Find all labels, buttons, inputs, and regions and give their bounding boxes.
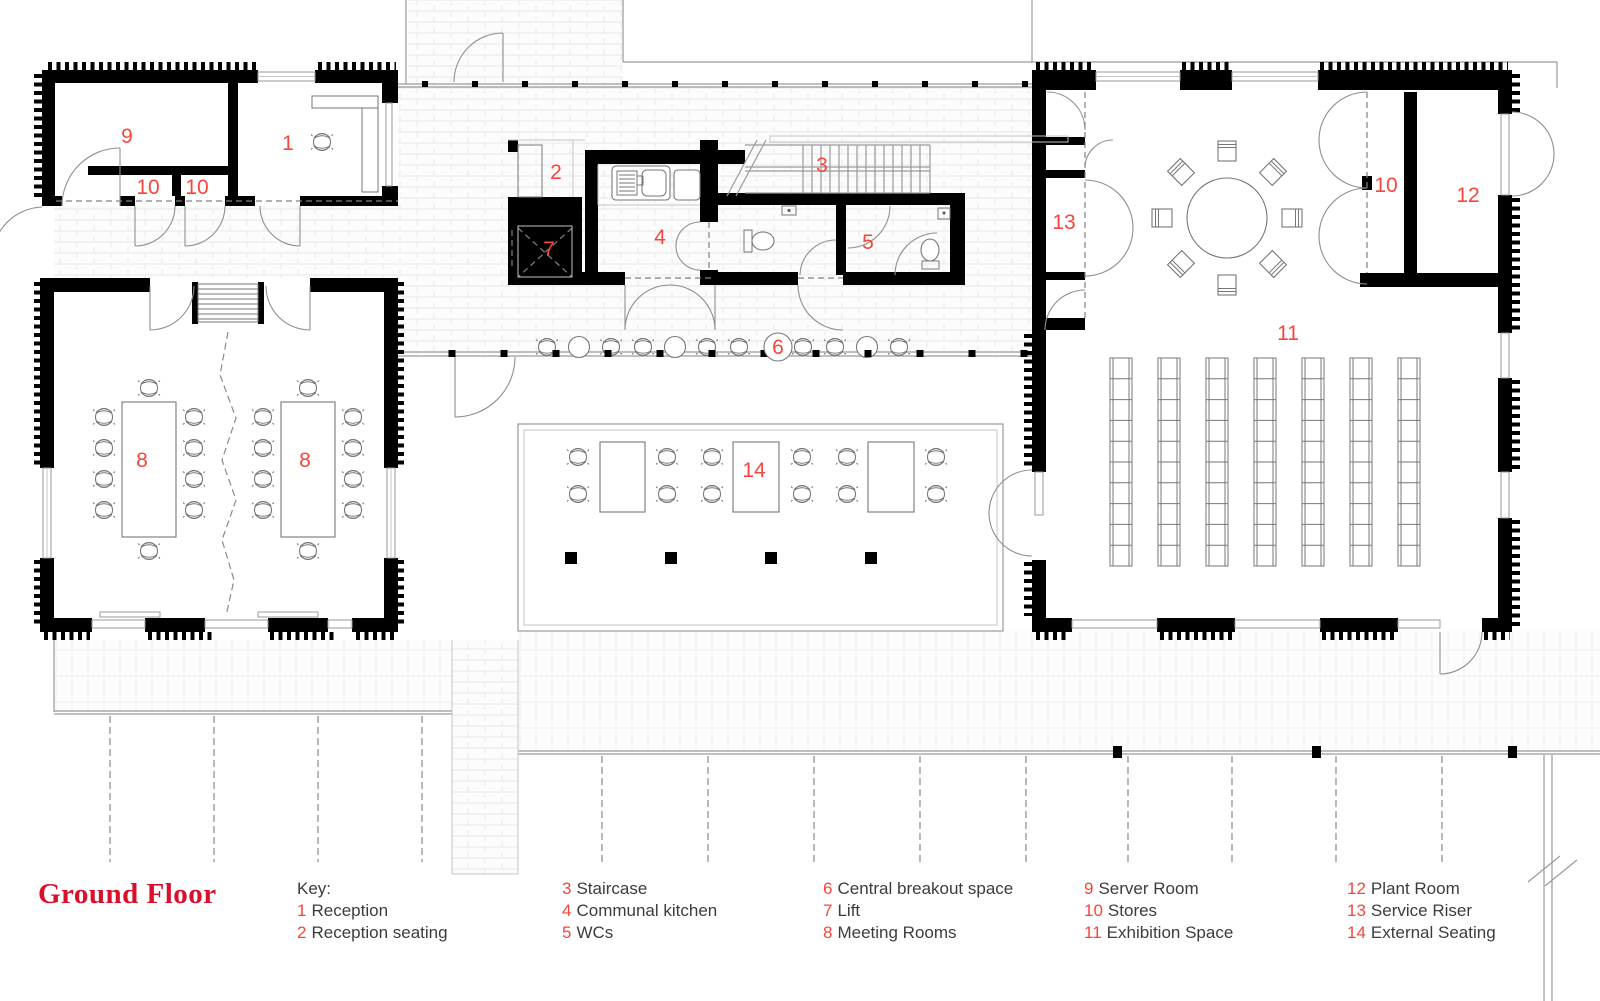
legend-item-label: Plant Room — [1371, 879, 1460, 898]
legend-item: 5WCs — [562, 922, 717, 944]
exhibition-racks — [1110, 358, 1420, 566]
round-table-group — [1152, 141, 1302, 295]
legend-item-number: 10 — [1084, 901, 1103, 920]
room-number-label: 4 — [654, 226, 666, 249]
legend-item-number: 4 — [562, 901, 571, 920]
legend-item: 4Communal kitchen — [562, 900, 717, 922]
legend-item: 1Reception — [297, 900, 448, 922]
legend-item-label: WCs — [576, 923, 613, 942]
room-number-label: 10 — [185, 176, 208, 199]
legend-item-number: 12 — [1347, 879, 1366, 898]
legend-column: 12Plant Room13Service Riser14External Se… — [1347, 878, 1496, 944]
page-title: Ground Floor — [38, 878, 217, 911]
legend-item-number: 6 — [823, 879, 832, 898]
legend-item: 9Server Room — [1084, 878, 1233, 900]
room-number-label: 5 — [862, 231, 874, 254]
legend-item: 7Lift — [823, 900, 1013, 922]
legend-item: 11Exhibition Space — [1084, 922, 1233, 944]
room-number-label: 10 — [136, 176, 159, 199]
legend-item: 8Meeting Rooms — [823, 922, 1013, 944]
meeting-table — [122, 402, 176, 537]
round-table — [1187, 178, 1267, 258]
toilet — [921, 239, 939, 261]
meeting-room-furniture — [93, 380, 364, 560]
apron-left — [54, 640, 452, 712]
room-number-label: 7 — [543, 238, 555, 261]
legend-column: 6Central breakout space7Lift8Meeting Roo… — [823, 878, 1013, 944]
legend-item-label: Central breakout space — [837, 879, 1013, 898]
kitchen-appliance — [674, 170, 700, 200]
room-number-label: 10 — [1374, 174, 1397, 197]
legend-item: 13Service Riser — [1347, 900, 1496, 922]
legend-item-number: 14 — [1347, 923, 1366, 942]
entry-path-north — [408, 0, 623, 86]
room-number-label: 11 — [1277, 322, 1299, 345]
room-number-label: 8 — [299, 449, 311, 472]
floor-plan-drawing: 123456788910101011121314 — [0, 0, 1600, 1001]
legend-heading: Key: — [297, 878, 448, 900]
legend-column: 3Staircase4Communal kitchen5WCs — [562, 878, 717, 944]
legend-item-label: Reception seating — [311, 923, 447, 942]
legend-item-number: 2 — [297, 923, 306, 942]
legend-column: 9Server Room10Stores11Exhibition Space — [1084, 878, 1233, 944]
deck-table — [600, 442, 645, 512]
legend-item-label: Communal kitchen — [576, 901, 717, 920]
legend-item: 12Plant Room — [1347, 878, 1496, 900]
west-corridor-floor — [54, 206, 398, 278]
room-number-label: 6 — [772, 336, 784, 359]
legend-item-label: External Seating — [1371, 923, 1496, 942]
legend-item-number: 13 — [1347, 901, 1366, 920]
room-number-label: 3 — [816, 154, 828, 177]
entry-path-south — [452, 640, 518, 874]
legend-item-label: Lift — [837, 901, 860, 920]
legend-item: 3Staircase — [562, 878, 717, 900]
legend-column: Key:1Reception2Reception seating — [297, 878, 448, 944]
legend-item: 10Stores — [1084, 900, 1233, 922]
legend-item: 6Central breakout space — [823, 878, 1013, 900]
room-number-label: 9 — [121, 125, 133, 148]
legend-item-label: Exhibition Space — [1107, 923, 1234, 942]
room-number-label: 13 — [1052, 211, 1075, 234]
legend-item-label: Server Room — [1098, 879, 1198, 898]
deck-table — [868, 442, 914, 512]
folding-partition-line — [220, 332, 236, 616]
partition-stack — [198, 284, 258, 322]
room-number-label: 12 — [1456, 184, 1479, 207]
deck-column — [665, 552, 677, 564]
room-number-label: 1 — [282, 132, 294, 155]
floorplan-page: 123456788910101011121314 Ground Floor Ke… — [0, 0, 1600, 1001]
legend-item: 2Reception seating — [297, 922, 448, 944]
legend-item-number: 11 — [1084, 923, 1102, 942]
external-seating-deck — [518, 424, 1003, 631]
deck-column — [865, 552, 877, 564]
toilet — [752, 232, 774, 250]
legend-item-label: Reception — [311, 901, 388, 920]
deck-column — [765, 552, 777, 564]
legend-item-number: 1 — [297, 901, 306, 920]
apron-right — [518, 631, 1600, 751]
room-number-label: 2 — [550, 161, 562, 184]
legend-item-number: 9 — [1084, 879, 1093, 898]
legend-item-number: 8 — [823, 923, 832, 942]
legend-item-number: 7 — [823, 901, 832, 920]
room-number-label: 14 — [742, 459, 766, 482]
legend-item-number: 3 — [562, 879, 571, 898]
legend-item-label: Service Riser — [1371, 901, 1472, 920]
legend-item-number: 5 — [562, 923, 571, 942]
legend-item-label: Meeting Rooms — [837, 923, 956, 942]
legend-item-label: Staircase — [576, 879, 647, 898]
room-number-label: 8 — [136, 449, 148, 472]
deck-column — [565, 552, 577, 564]
legend-item-label: Stores — [1108, 901, 1157, 920]
legend-item: 14External Seating — [1347, 922, 1496, 944]
